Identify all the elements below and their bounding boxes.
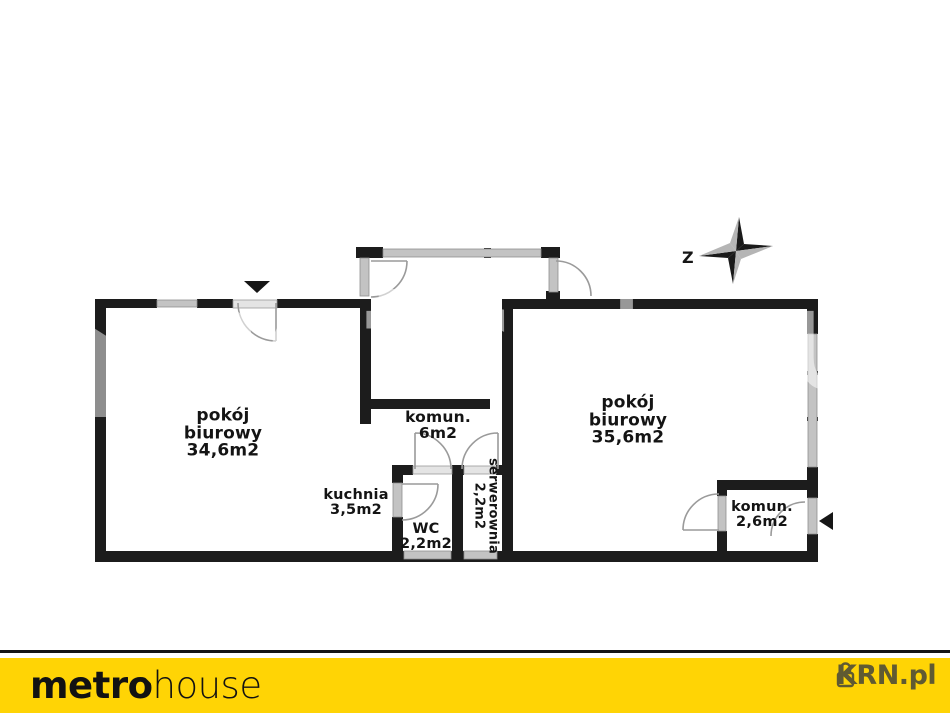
wall-bottom-outer (95, 551, 818, 562)
krn-watermark: KRN.pl (836, 660, 936, 691)
glazing-vestibule-right (549, 258, 558, 292)
door-opening-wc-left (393, 483, 402, 517)
room-name: serwerownia (486, 458, 500, 554)
window-top-left-room (157, 300, 197, 307)
window-right-wall (808, 334, 817, 467)
door-arc-komun26 (683, 494, 719, 530)
wall-mid-vertical (502, 299, 513, 551)
room-name: WC (400, 522, 452, 537)
compass-label: Z (682, 248, 694, 267)
door-opening-wc-top (413, 466, 452, 474)
room-name: komun. (731, 500, 793, 515)
room-area: 6m2 (405, 425, 471, 441)
entrance-marker-top-icon (244, 281, 270, 293)
glazing-vestibule-top (383, 249, 541, 257)
room-area: 2,6m2 (731, 515, 793, 530)
padlock-icon (836, 660, 855, 690)
footer-bar: metrohouse Nieruchomości • Kredyty • Ube… (0, 658, 950, 713)
wall-right-outer-top (807, 299, 818, 334)
wall-wc-serw-divider (452, 465, 463, 551)
room-label-serwerownia: serwerownia 2,2m2 (472, 458, 499, 554)
wall-vestibule-corner-left (356, 247, 383, 258)
wall-vestibule-corner-right (541, 247, 560, 258)
entrance-marker-right-icon (819, 512, 833, 530)
floorplan-drawing: Z (0, 0, 950, 713)
wall-wc-left-top (392, 465, 403, 483)
logo-bold-part: metr (30, 664, 128, 707)
door-arc-vestibule-west (371, 261, 407, 297)
metrohouse-logo: metrohouse (30, 658, 262, 713)
glazing-vestibule-left (360, 258, 369, 296)
wall-komun26-top (717, 480, 807, 490)
door-arc-main-entrance (238, 303, 276, 341)
room-name: komun. (405, 409, 471, 425)
wall-komun26-left-low (717, 531, 727, 551)
room-area: 3,5m2 (323, 503, 388, 518)
door-right-entrance (808, 498, 817, 534)
compass-rose-icon: Z (682, 217, 773, 284)
wall-right-outer-low (807, 534, 818, 562)
door-opening-main (233, 300, 277, 308)
room-area: 35,6m2 (589, 430, 667, 448)
wall-right-outer-mid (807, 467, 818, 498)
door-arc-wc-inner (402, 484, 438, 520)
room-label-kuchnia: kuchnia 3,5m2 (323, 488, 388, 518)
room-area: 2,2m2 (472, 458, 486, 554)
room-label-wc: WC 2,2m2 (400, 522, 452, 552)
room-label-komun-6: komun. 6m2 (405, 409, 471, 441)
door-opening-komun26 (718, 496, 726, 531)
floorplan-page: Z pokój biurowy 34,6m2 komun. 6m2 pokój … (0, 0, 950, 713)
wall-top-b (197, 299, 233, 308)
room-label-office-left: pokój biurowy 34,6m2 (184, 407, 262, 460)
logo-house-o-icon: o (128, 664, 153, 707)
room-area: 2,2m2 (400, 537, 452, 552)
wall-top-a (95, 299, 157, 308)
wall-top-c (277, 299, 368, 308)
door-arc-vestibule-east (556, 261, 591, 296)
room-label-komun-26: komun. 2,6m2 (731, 500, 793, 530)
footer-separator (0, 650, 950, 653)
wall-left-outer (95, 299, 106, 561)
room-label-office-right: pokój biurowy 35,6m2 (589, 394, 667, 447)
room-area: 34,6m2 (184, 443, 262, 461)
wall-bottom-wc-gray (404, 551, 451, 559)
logo-light-part: house (153, 664, 262, 707)
wall-top-right-room (508, 299, 818, 309)
room-name: kuchnia (323, 488, 388, 503)
